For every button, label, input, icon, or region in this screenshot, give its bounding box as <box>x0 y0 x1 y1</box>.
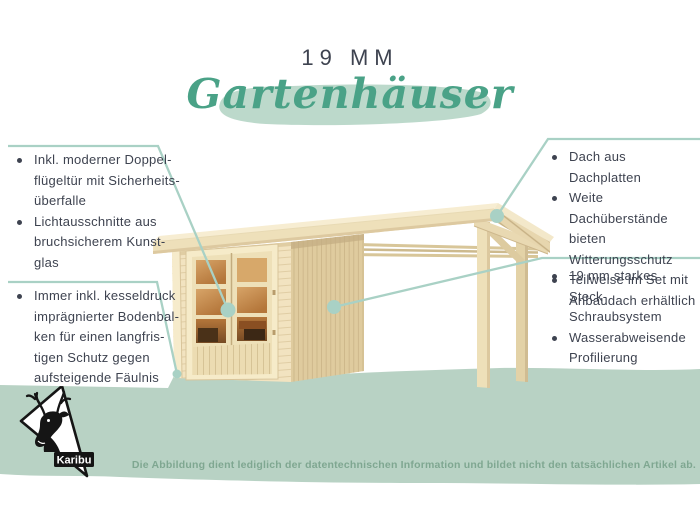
callout-dot-roof <box>490 209 504 223</box>
feature-item: 19 mm starkes Steck- Schraubsystem <box>545 266 699 328</box>
feature-card-bottom-left: Immer inkl. kesseldruck imprägnierter Bo… <box>10 286 192 389</box>
feature-list: Inkl. moderner Doppel- flügeltür mit Sic… <box>10 150 182 273</box>
page-title: 19 MM <box>0 45 700 71</box>
feature-item: Inkl. moderner Doppel- flügeltür mit Sic… <box>10 150 182 212</box>
garden-house-illustration <box>153 203 554 388</box>
product-infographic: Karibu 19 MM Gartenhäuser Inkl. moderner… <box>0 0 700 525</box>
door-hinge <box>273 290 276 295</box>
feature-item: Immer inkl. kesseldruck imprägnierter Bo… <box>10 286 192 389</box>
feature-card-top-left: Inkl. moderner Doppel- flügeltür mit Sic… <box>10 150 182 273</box>
feature-list: Immer inkl. kesseldruck imprägnierter Bo… <box>10 286 192 389</box>
page-subtitle: Gartenhäuser <box>0 70 700 118</box>
feature-item: Lichtausschnitte aus bruchsicherem Kunst… <box>10 212 182 274</box>
feature-list: 19 mm starkes Steck- Schraubsystem Wasse… <box>545 266 699 369</box>
feature-card-bottom-right: 19 mm starkes Steck- Schraubsystem Wasse… <box>545 266 699 369</box>
feature-item: Weite Dachüberstände bieten Witterungssc… <box>545 188 699 270</box>
feature-item: Dach aus Dachplatten <box>545 147 699 188</box>
callout-dot-wall <box>327 300 341 314</box>
feature-item: Wasserabweisende Profilierung <box>545 328 699 369</box>
logo-brand-text: Karibu <box>57 455 92 467</box>
callout-dot-door <box>221 303 236 318</box>
door-hinge <box>273 330 276 335</box>
disclaimer-text: Die Abbildung dient lediglich der datent… <box>132 459 696 471</box>
deer-eye <box>47 419 50 422</box>
